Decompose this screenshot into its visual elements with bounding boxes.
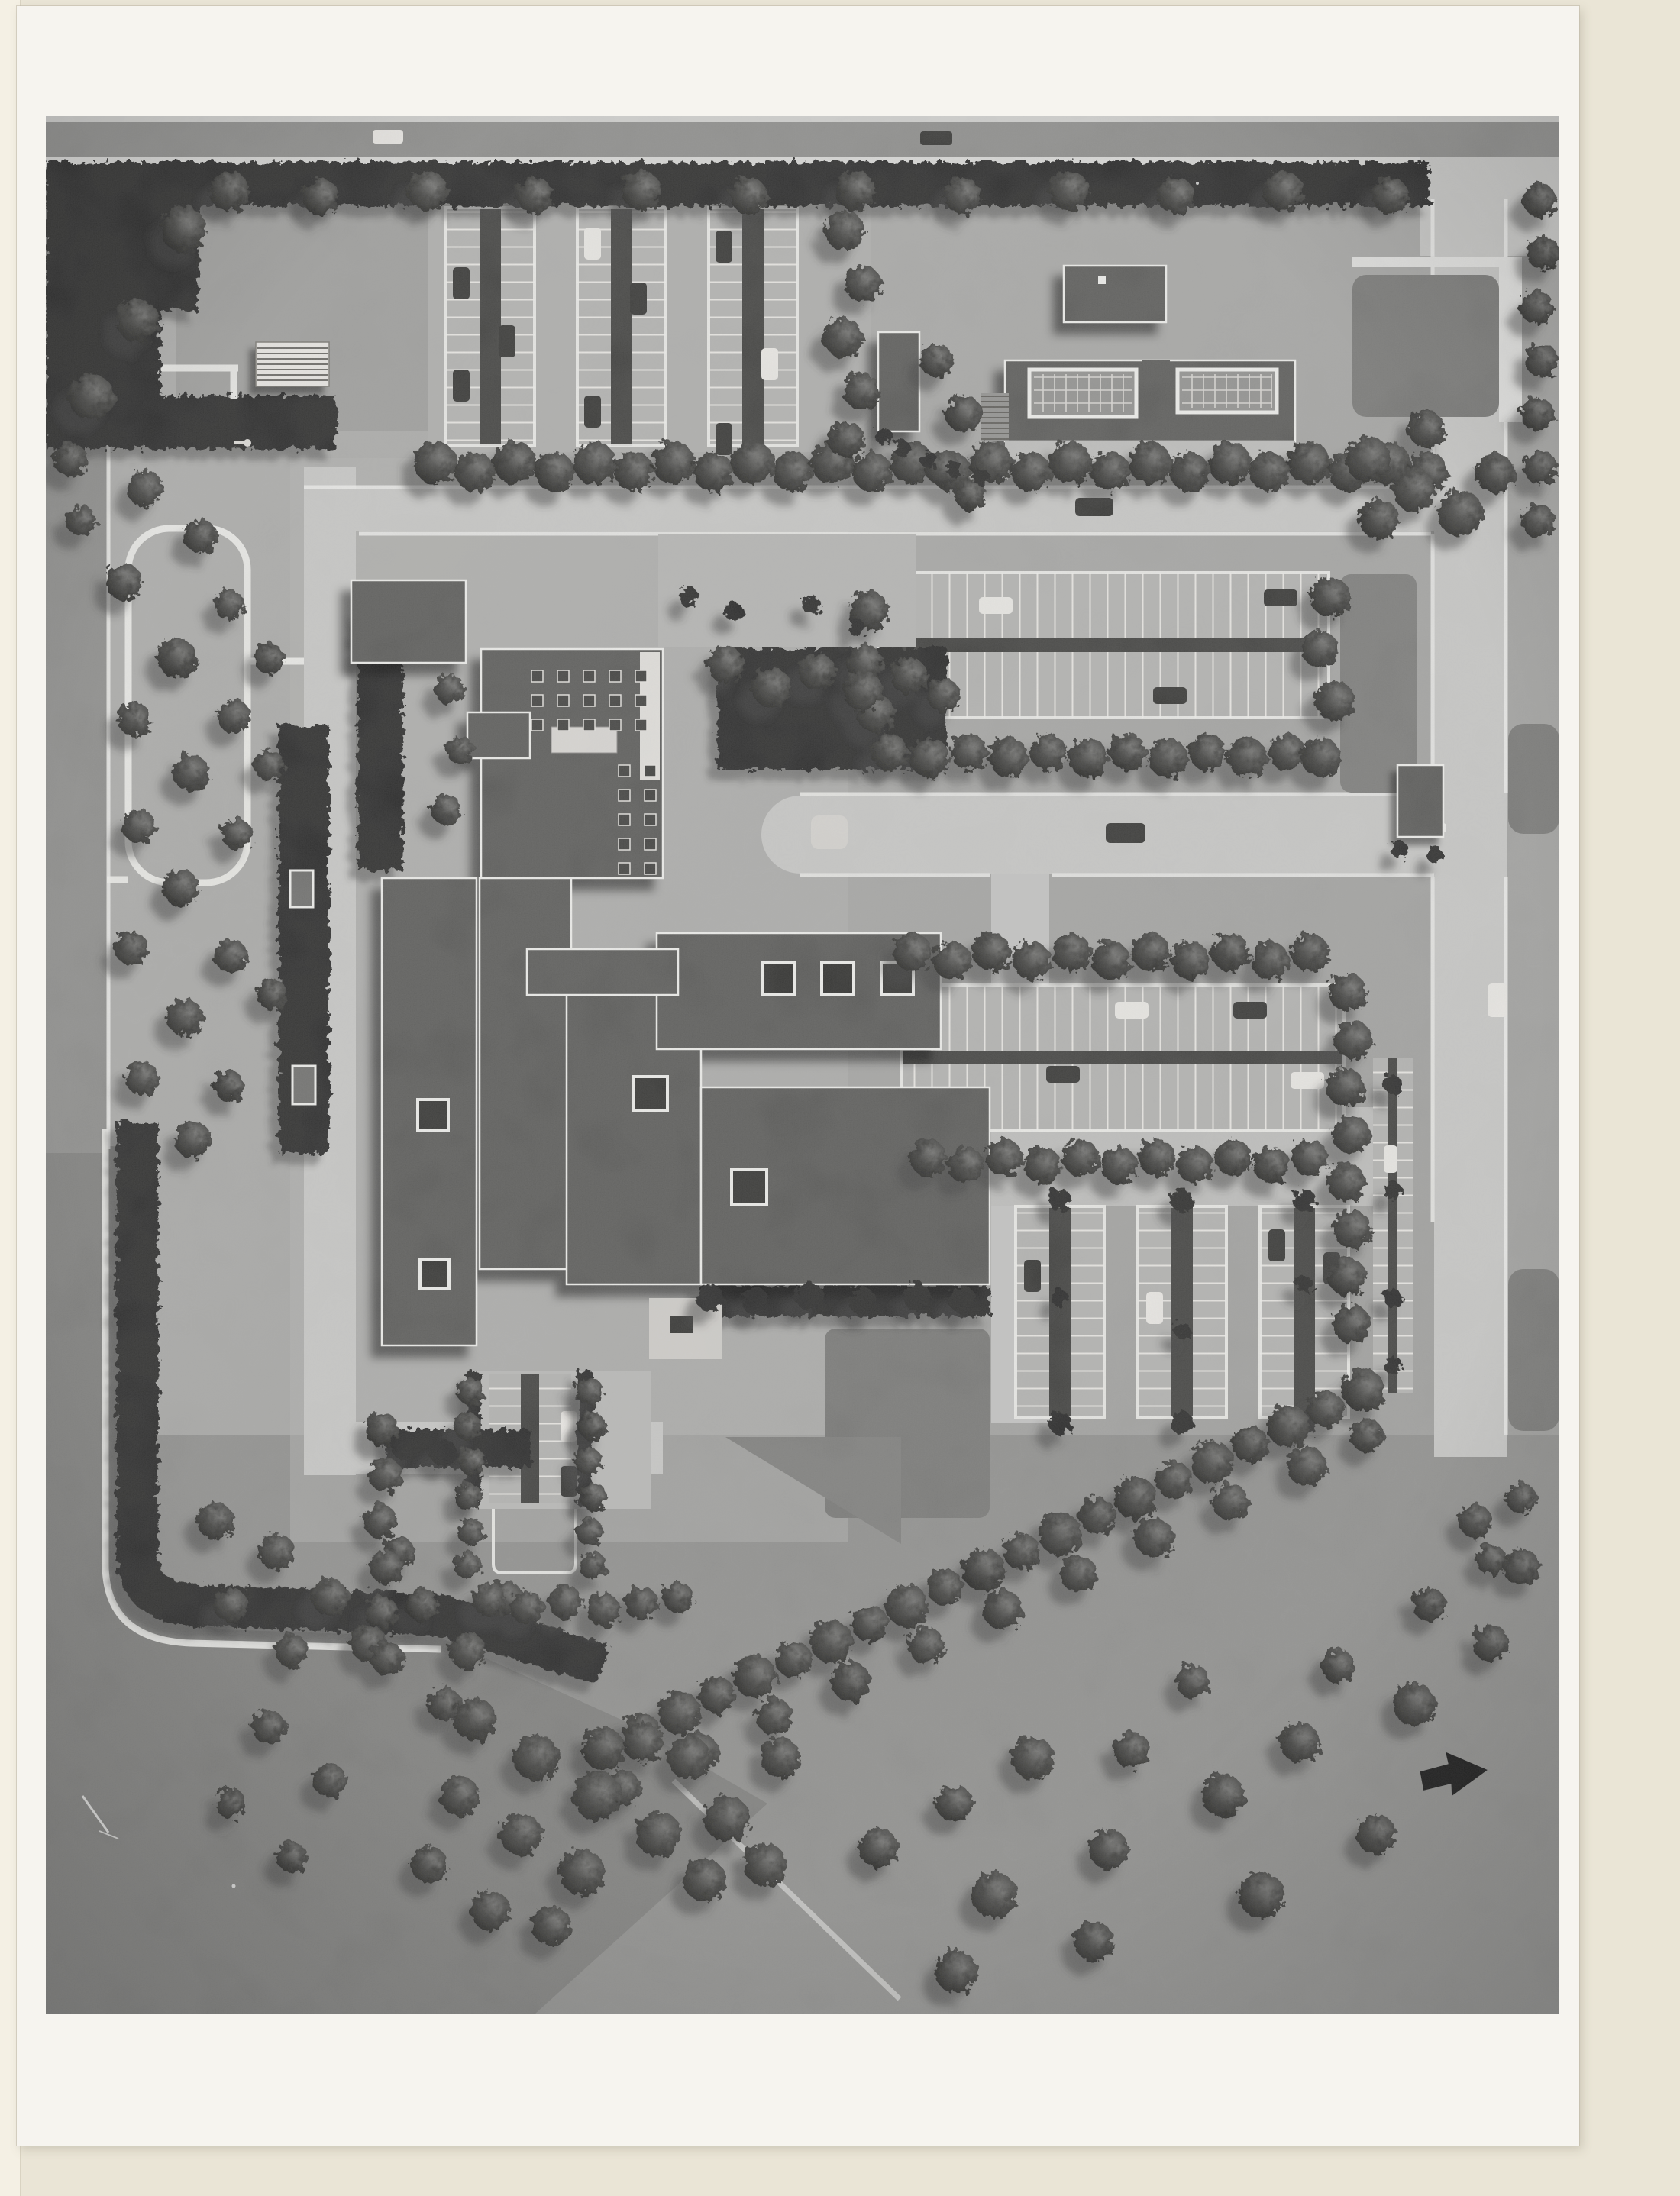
aerial-model-photo xyxy=(46,116,1559,2014)
photo-effects xyxy=(46,116,1559,2014)
photo-print xyxy=(17,6,1579,2146)
model-scene xyxy=(46,116,1559,2014)
photo-mat xyxy=(0,0,1680,2196)
